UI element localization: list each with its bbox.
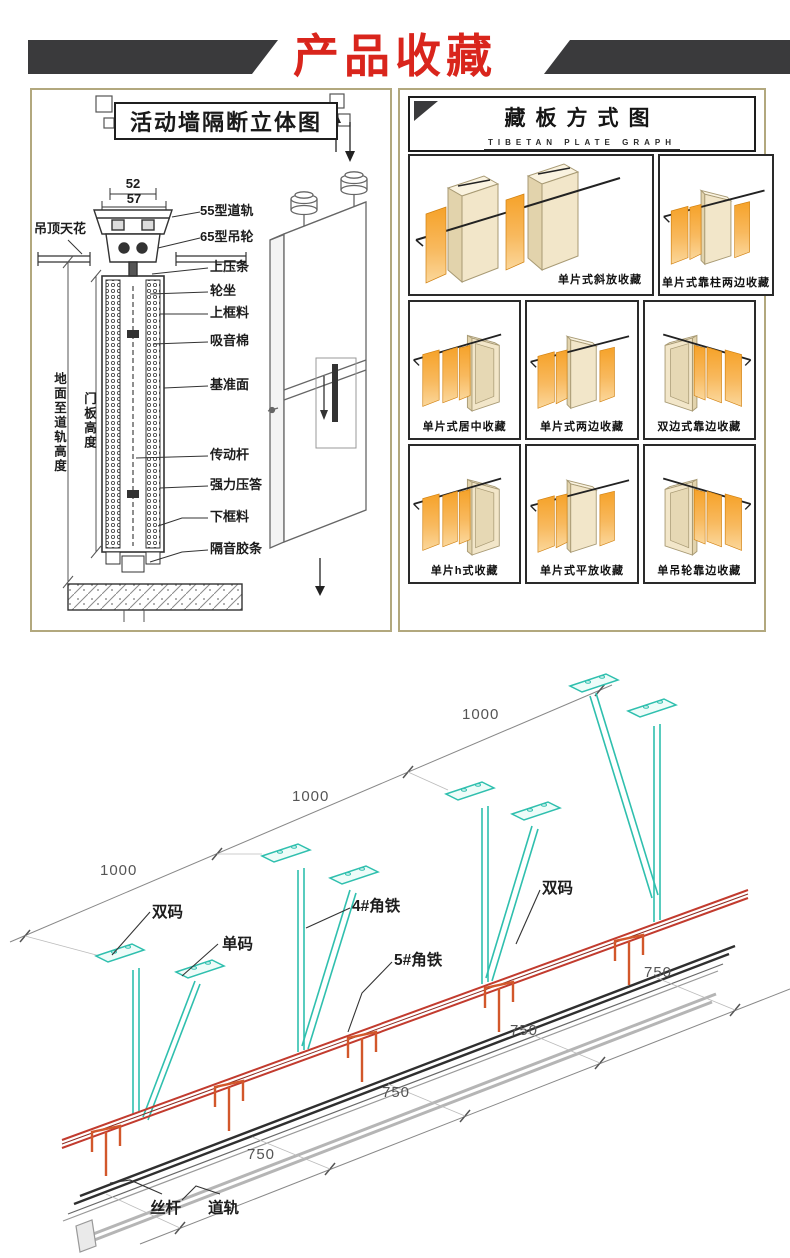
label-wheel-seat: 轮坐 — [210, 284, 236, 298]
storage-caption: 单片式平放收藏 — [527, 562, 636, 578]
storage-caption: 单片式靠柱两边收藏 — [660, 274, 772, 290]
label-rail55: 55型道轨 — [200, 204, 253, 218]
page-header: 产品收藏 — [0, 12, 790, 84]
label-top-frame: 上框料 — [210, 306, 249, 320]
corner-triangle-icon — [414, 101, 438, 121]
storage-caption: 单片式居中收藏 — [410, 418, 519, 434]
elevation-title: 活动墙隔断立体图 — [130, 105, 322, 137]
label-strong-seal: 强力压答 — [210, 478, 262, 492]
label-ceiling: 吊顶天花 — [34, 222, 86, 236]
label-drive-rod: 传动杆 — [210, 448, 249, 462]
storage-subtitle: TIBETAN PLATE GRAPH — [484, 137, 680, 150]
storage-header: 藏板方式图 TIBETAN PLATE GRAPH — [408, 96, 756, 152]
down-arrow-icon — [345, 122, 355, 162]
storage-grid-row-1: 单片式斜放收藏 单片式靠柱两边收藏 — [408, 154, 756, 296]
elevation-title-box: 活动墙隔断立体图 — [114, 102, 338, 140]
storage-caption: 双边式靠边收藏 — [645, 418, 754, 434]
label-sound-strip: 隔音胶条 — [210, 542, 262, 556]
door-3d-drawing — [268, 112, 367, 596]
label-wheel65: 65型吊轮 — [200, 230, 253, 244]
storage-cell: 双边式靠边收藏 — [643, 300, 756, 440]
label-bottom-frame: 下框料 — [210, 510, 249, 524]
storage-grid-row-3: 单片h式收藏 单片式平放收藏 单吊轮靠边收藏 — [408, 444, 756, 584]
label-threaded-rod: 丝杆 — [150, 1196, 181, 1218]
label-height-door: 门板高度 — [80, 392, 99, 450]
dim-750-a: 750 — [644, 964, 672, 981]
storage-caption: 单片式两边收藏 — [527, 418, 636, 434]
elevation-panel: 活动墙隔断立体图 — [30, 88, 392, 632]
label-double-bracket-right: 双码 — [542, 876, 573, 898]
storage-cell: 单片式斜放收藏 — [408, 154, 654, 296]
storage-cell: 单片式平放收藏 — [525, 444, 638, 584]
storage-panel: 藏板方式图 TIBETAN PLATE GRAPH — [398, 88, 766, 632]
storage-caption: 单吊轮靠边收藏 — [645, 562, 754, 578]
dim-1000-c: 1000 — [462, 706, 499, 723]
dim-57: 57 — [116, 191, 152, 206]
storage-cell: 单片式居中收藏 — [408, 300, 521, 440]
track-beam — [62, 890, 748, 1148]
label-track-rail: 道轨 — [208, 1196, 239, 1218]
label-top-strip: 上压条 — [210, 260, 249, 274]
dim-750-b: 750 — [510, 1022, 538, 1039]
storage-cell: 单吊轮靠边收藏 — [643, 444, 756, 584]
storage-title: 藏板方式图 — [410, 102, 754, 132]
label-double-bracket-left: 双码 — [152, 900, 183, 922]
dim-52: 52 — [115, 176, 151, 191]
installation-diagram: 1000 1000 1000 750 750 750 750 双码 单码 4#角… — [0, 648, 790, 1258]
storage-grid-row-2: 单片式居中收藏 单片式两边收藏 双边式靠边收藏 — [408, 300, 756, 440]
partition-column — [102, 276, 164, 572]
dim-1000-a: 1000 — [100, 862, 137, 879]
storage-cell: 单片式两边收藏 — [525, 300, 638, 440]
label-angle-iron-4: 4#角铁 — [352, 894, 400, 916]
label-datum-face: 基准面 — [210, 378, 249, 392]
dim-750-c: 750 — [382, 1084, 410, 1101]
bottom-arrow-icon — [315, 558, 325, 596]
storage-cell: 单片h式收藏 — [408, 444, 521, 584]
dimension-chain-1000 — [10, 684, 612, 956]
label-single-bracket: 单码 — [222, 932, 253, 954]
storage-cell: 单片式靠柱两边收藏 — [658, 154, 774, 296]
floor-band — [68, 584, 242, 622]
page-title: 产品收藏 — [0, 20, 790, 86]
page: 产品收藏 活动墙隔断立体图 — [0, 0, 790, 1258]
label-angle-iron-5: 5#角铁 — [394, 948, 442, 970]
label-height-floor-to-rail: 地面至道轨高度 — [50, 372, 69, 474]
dim-750-d: 750 — [247, 1146, 275, 1163]
storage-caption: 单片h式收藏 — [410, 562, 519, 578]
label-acoustic-cotton: 吸音棉 — [210, 334, 249, 348]
storage-caption: 单片式斜放收藏 — [558, 271, 642, 287]
rail-profile — [94, 210, 172, 276]
dim-1000-b: 1000 — [292, 788, 329, 805]
